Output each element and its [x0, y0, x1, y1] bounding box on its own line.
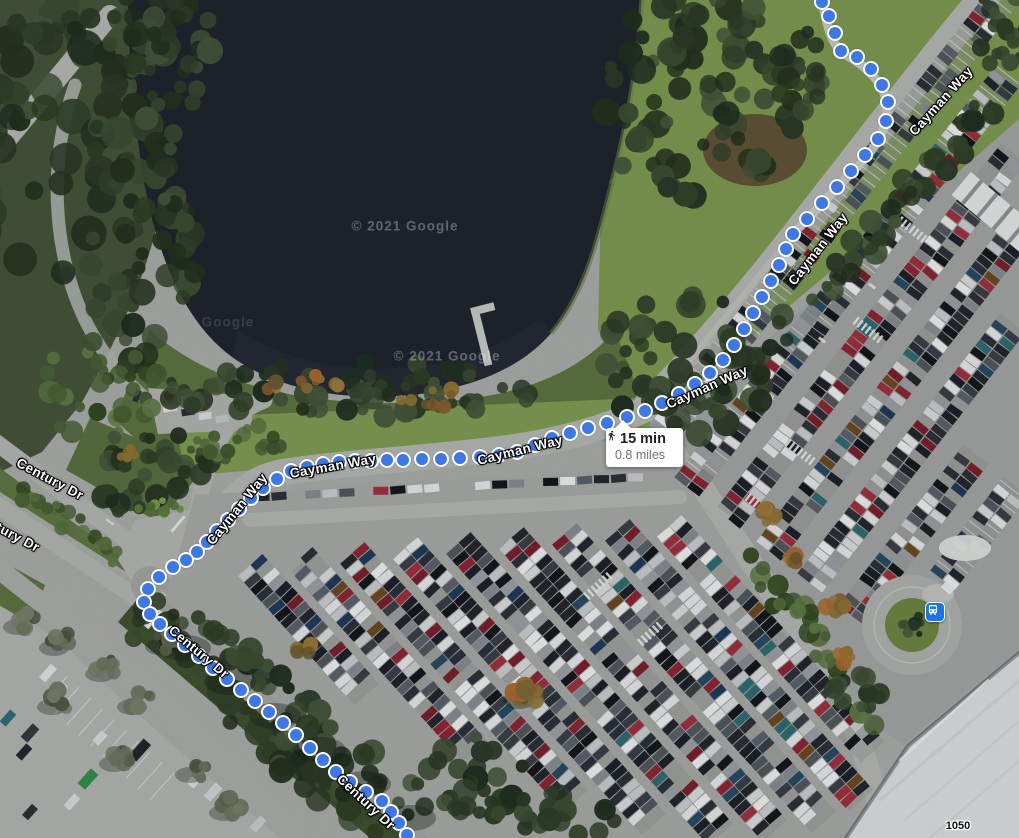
route-dot[interactable] [857, 147, 873, 163]
route-dot[interactable] [395, 452, 411, 468]
route-dot[interactable] [637, 403, 653, 419]
route-dot[interactable] [880, 94, 896, 110]
route-dot[interactable] [379, 452, 395, 468]
map-attribution-watermark: Google [202, 315, 255, 330]
route-dot[interactable] [269, 471, 285, 487]
route-dot[interactable] [736, 321, 752, 337]
route-dot[interactable] [821, 8, 837, 24]
route-dot[interactable] [827, 25, 843, 41]
route-dot[interactable] [814, 195, 830, 211]
map-attribution-watermark: © 2021 Google [352, 219, 459, 234]
route-dot[interactable] [843, 163, 859, 179]
route-dot[interactable] [233, 682, 249, 698]
route-info-bubble[interactable]: 15 min 0.8 miles [606, 428, 683, 467]
route-dot[interactable] [414, 451, 430, 467]
route-dot[interactable] [247, 693, 263, 709]
route-duration: 15 min [620, 431, 666, 447]
route-dot[interactable] [785, 226, 801, 242]
map-canvas[interactable]: Cayman WayCayman WayCayman WayCayman Way… [0, 0, 1019, 838]
route-dot[interactable] [275, 715, 291, 731]
route-dot[interactable] [399, 827, 415, 838]
route-dot[interactable] [165, 559, 181, 575]
route-dot[interactable] [433, 451, 449, 467]
route-dot[interactable] [829, 179, 845, 195]
bus-station-icon[interactable] [925, 602, 945, 622]
route-dot[interactable] [315, 752, 331, 768]
route-dot[interactable] [745, 305, 761, 321]
route-dot[interactable] [452, 450, 468, 466]
route-dot[interactable] [261, 704, 277, 720]
route-dot[interactable] [763, 273, 779, 289]
route-dot[interactable] [726, 337, 742, 353]
route-dot[interactable] [754, 289, 770, 305]
route-dot[interactable] [863, 61, 879, 77]
route-dot[interactable] [878, 113, 894, 129]
route-dot[interactable] [288, 727, 304, 743]
route-dot[interactable] [580, 420, 596, 436]
route-distance: 0.8 miles [615, 448, 673, 462]
route-dot[interactable] [799, 211, 815, 227]
route-dot[interactable] [778, 241, 794, 257]
route-dot[interactable] [833, 43, 849, 59]
route-dot[interactable] [302, 740, 318, 756]
map-attribution-watermark: © 2021 Google [394, 349, 501, 364]
route-dot[interactable] [715, 352, 731, 368]
route-dot[interactable] [870, 131, 886, 147]
route-dot[interactable] [562, 425, 578, 441]
building-number-label: 1050 [946, 820, 970, 832]
route-dot[interactable] [771, 257, 787, 273]
route-dot[interactable] [874, 77, 890, 93]
route-dot[interactable] [849, 49, 865, 65]
